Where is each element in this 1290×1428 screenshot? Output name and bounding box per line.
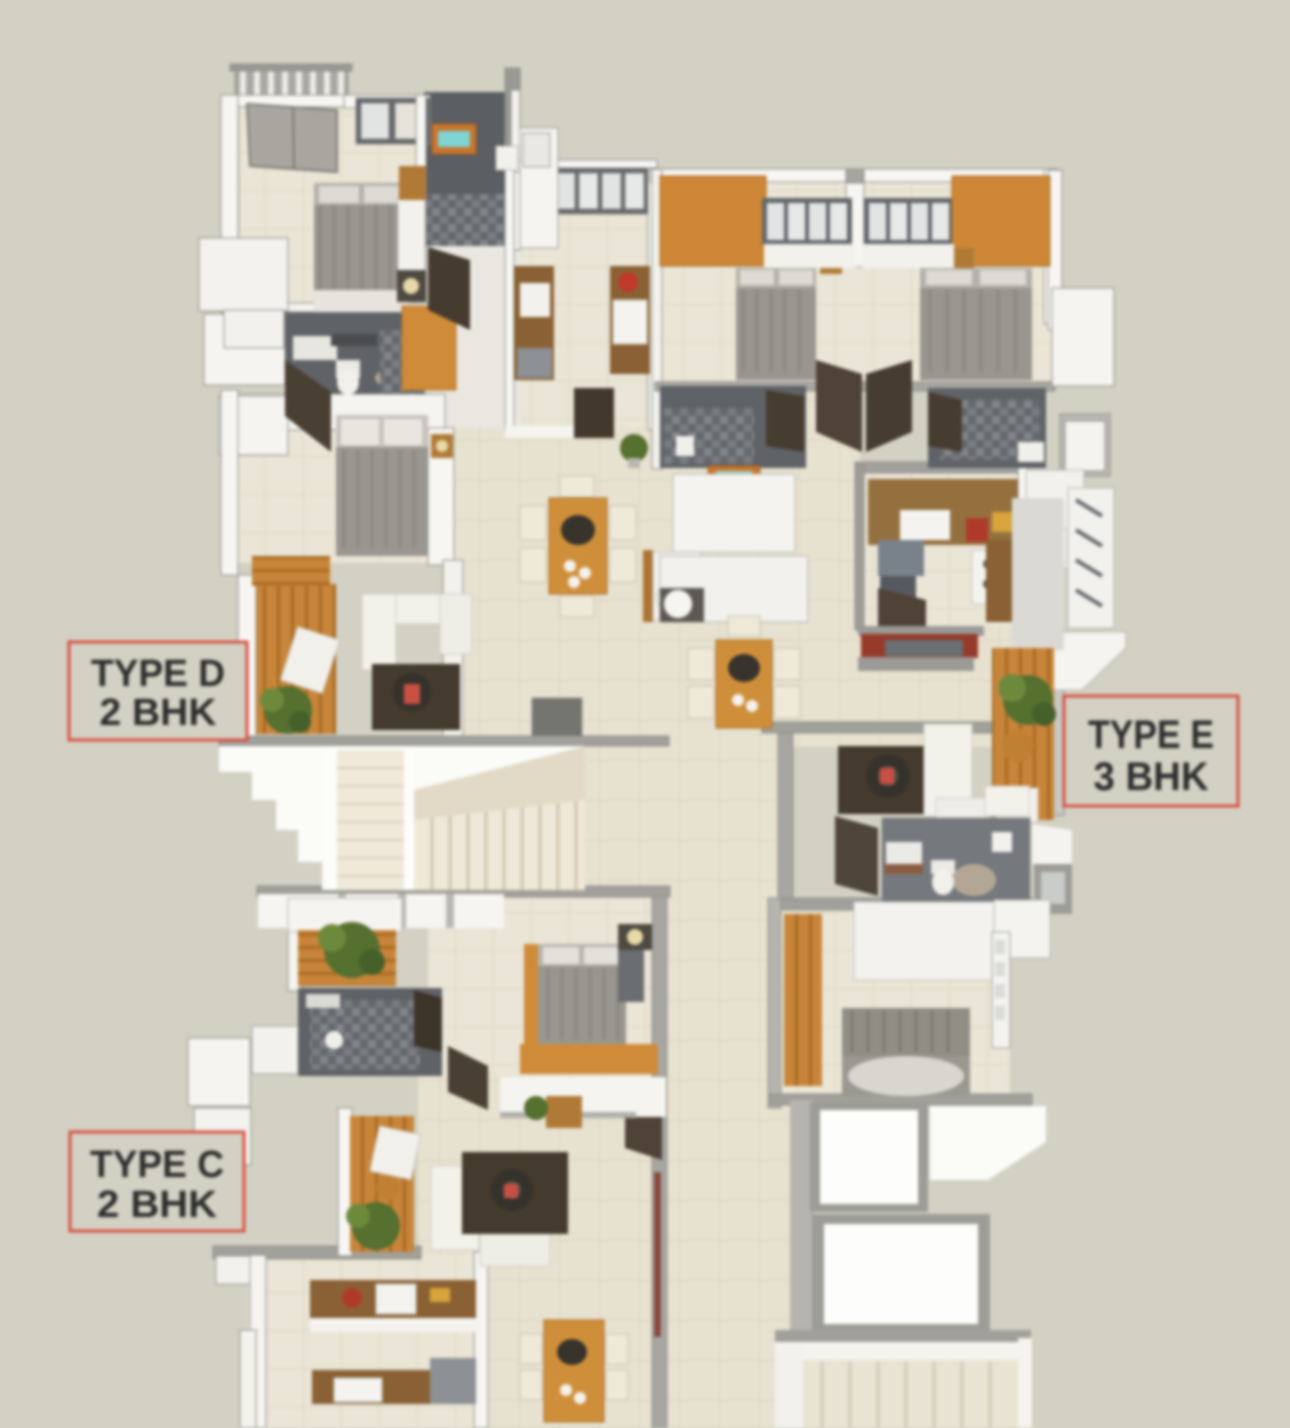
svg-text:TYPE C: TYPE C [90,1144,224,1186]
svg-text:TYPE D: TYPE D [91,653,225,695]
svg-text:3 BHK: 3 BHK [1094,755,1209,799]
svg-text:TYPE E: TYPE E [1088,713,1214,757]
svg-text:2 BHK: 2 BHK [100,692,218,734]
svg-text:2 BHK: 2 BHK [97,1184,218,1226]
